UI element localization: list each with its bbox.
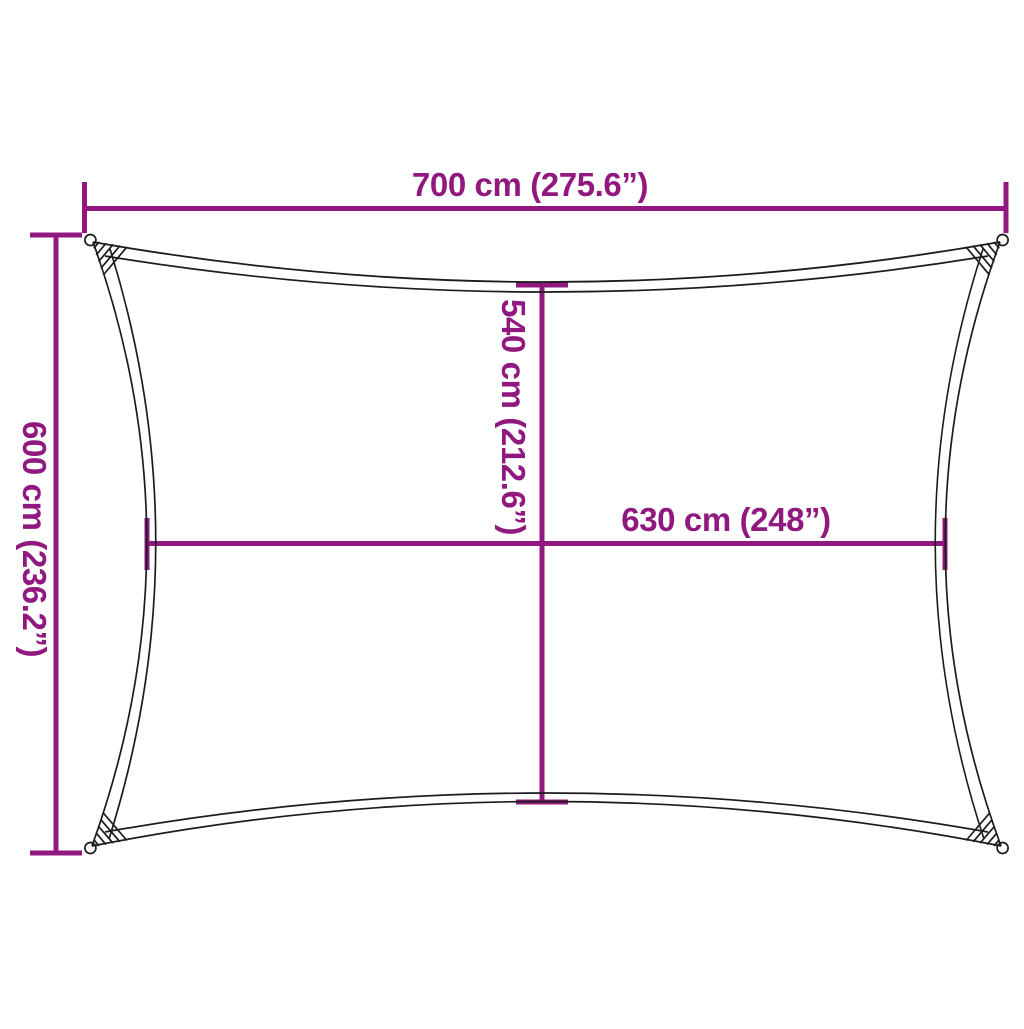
svg-text:700 cm (275.6”): 700 cm (275.6”) (412, 166, 648, 203)
svg-text:600 cm (236.2”): 600 cm (236.2”) (16, 421, 53, 657)
svg-text:540 cm (212.6”): 540 cm (212.6”) (495, 299, 532, 535)
svg-text:630 cm (248”): 630 cm (248”) (621, 501, 830, 538)
